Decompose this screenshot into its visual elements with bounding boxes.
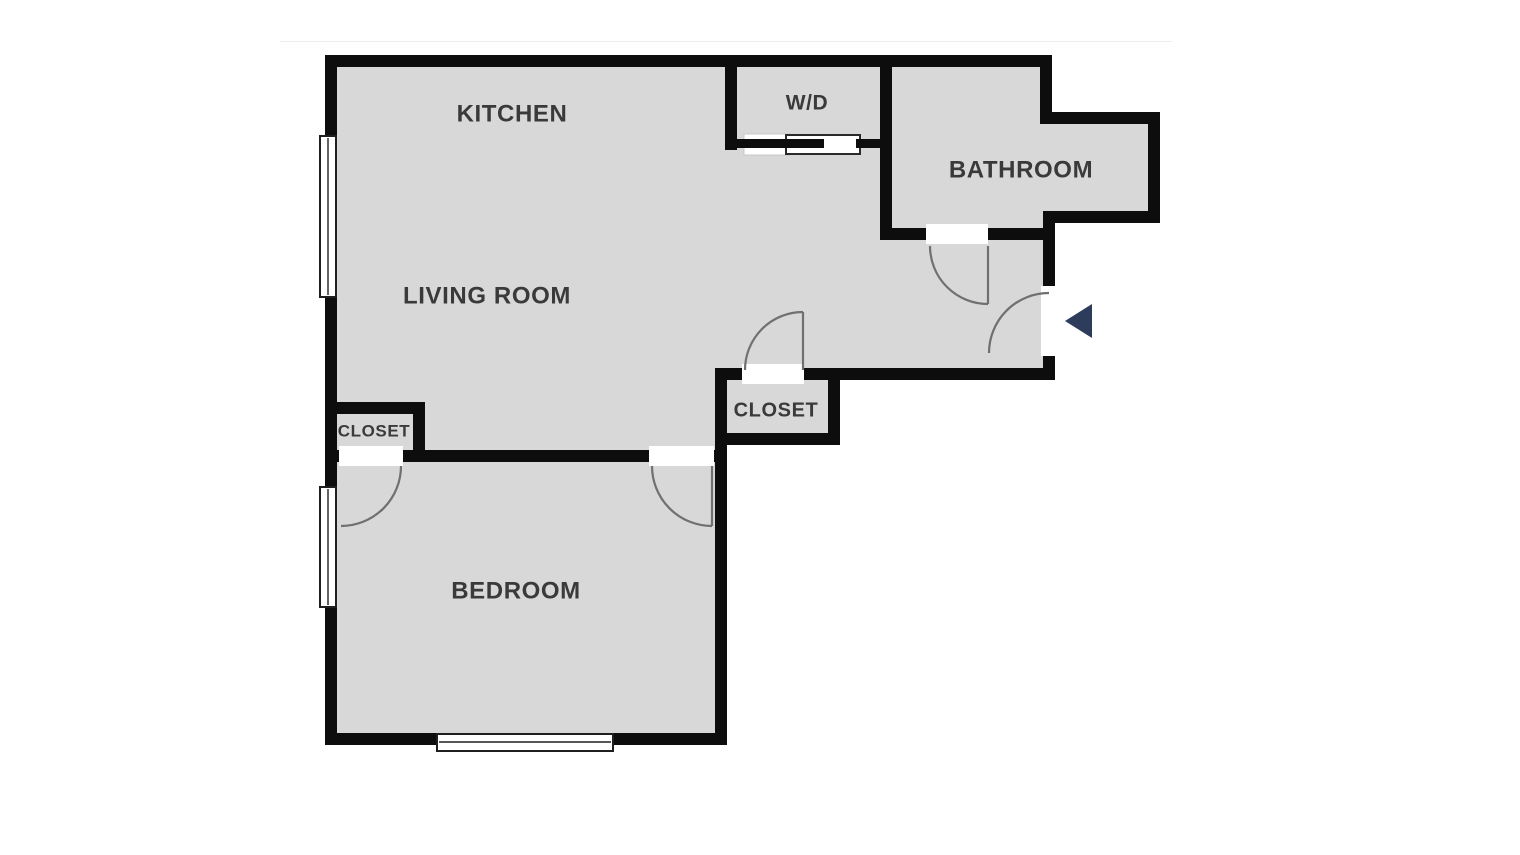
floorplan-drawing: KITCHEN W/D BATHROOM LIVING ROOM CLOSET …: [0, 0, 1520, 770]
floorplan-page: KITCHEN W/D BATHROOM LIVING ROOM CLOSET …: [0, 0, 1520, 855]
sliding-track-bar: [727, 139, 824, 148]
bathroom-label: BATHROOM: [949, 156, 1093, 183]
wall-bathroom-step: [1040, 55, 1052, 124]
bathroom-door-opening: [926, 224, 988, 244]
closet-bedroom-label: CLOSET: [338, 421, 411, 440]
wall-bathroom-ext-bottom: [1043, 211, 1160, 223]
closet-hall-label: CLOSET: [734, 399, 819, 421]
wall-wd-left: [725, 55, 737, 150]
wall-bathroom-ext-right: [1148, 112, 1160, 223]
wall-closet-hall-bottom: [715, 433, 840, 445]
kitchen-label: KITCHEN: [457, 100, 568, 127]
window-living-left: [320, 136, 336, 297]
wall-closet-hall-right: [828, 368, 840, 445]
window-bedroom-left: [320, 487, 336, 607]
living-room-label: LIVING ROOM: [403, 282, 571, 309]
closet-hall-door-opening: [742, 364, 804, 384]
wall-closet-bedroom-top: [325, 402, 425, 414]
wall-closet-bedroom-right: [413, 402, 425, 462]
bedroom-door-opening: [649, 446, 714, 466]
footer: MAIN ENTRANCE PROPERTY ID: NYC 651 BLUEG…: [0, 770, 1520, 855]
wall-bedroom-right: [715, 368, 727, 745]
bedroom-label: BEDROOM: [451, 577, 581, 604]
entrance-opening: [1041, 286, 1057, 356]
image-top-edge: [280, 41, 1172, 42]
sliding-wall-stub: [856, 139, 884, 148]
entrance-arrow-icon: [1065, 304, 1092, 338]
closet-bedroom-door-opening: [339, 446, 403, 466]
wall-top: [325, 55, 1052, 67]
wd-sliding-door: [727, 134, 884, 155]
wall-bathroom-ext-top: [1040, 112, 1160, 124]
wd-label: W/D: [786, 92, 829, 115]
window-bedroom-bottom: [437, 734, 613, 751]
